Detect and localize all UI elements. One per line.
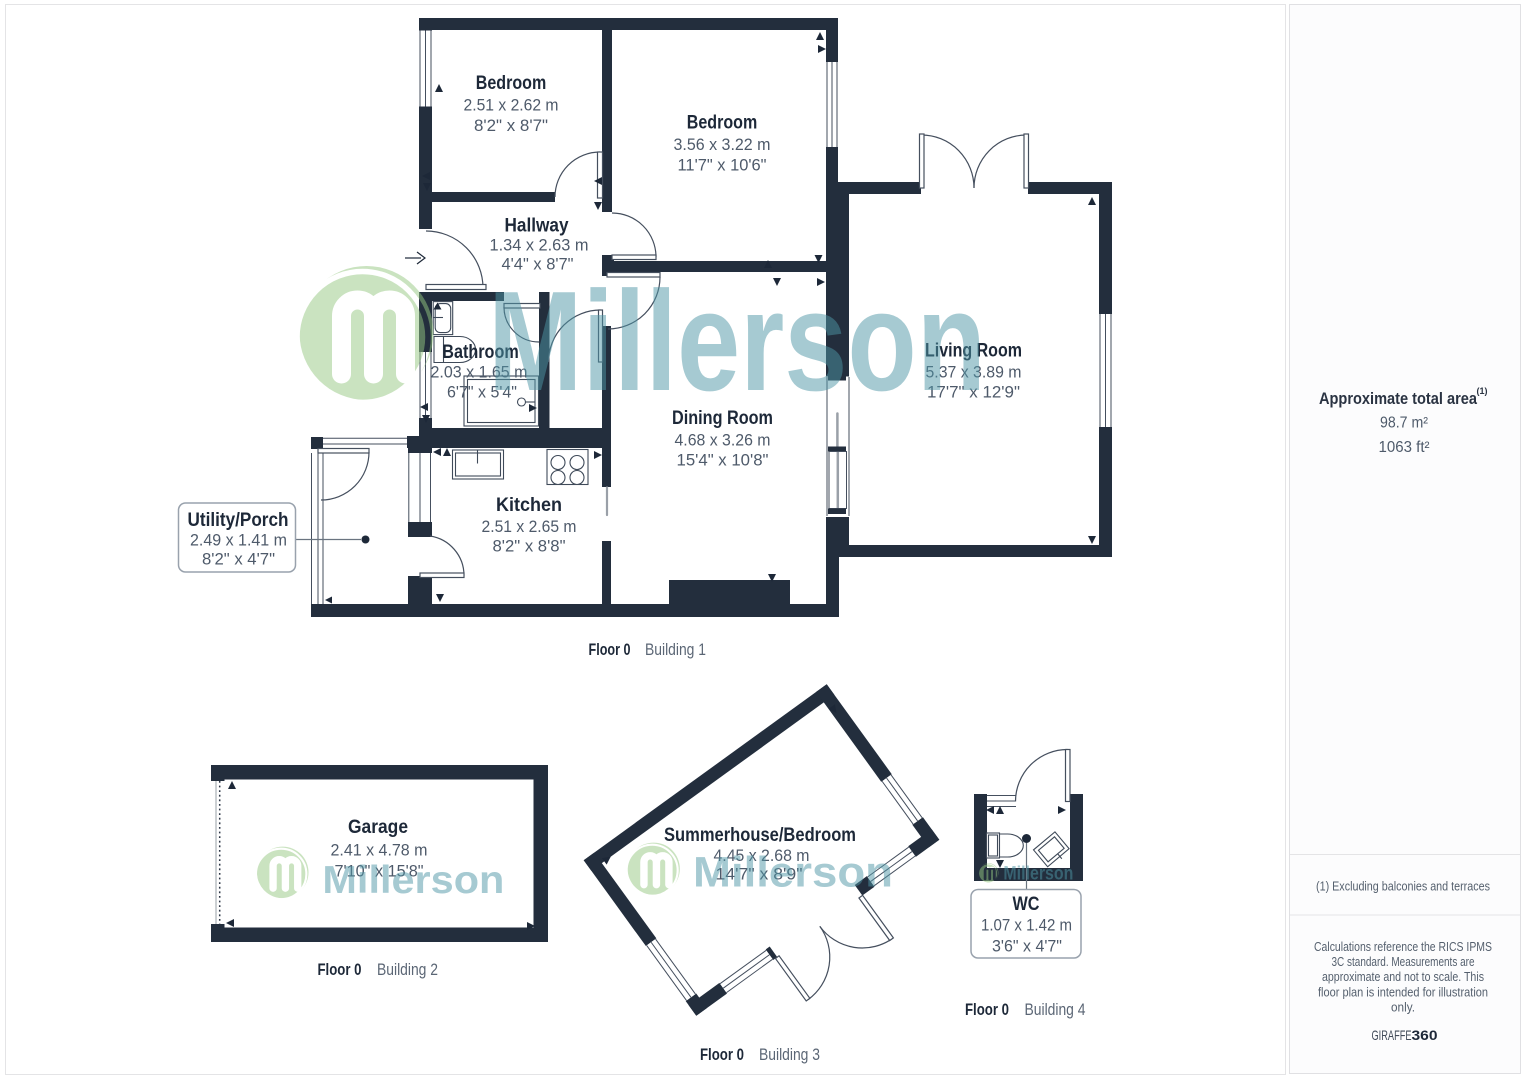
svg-text:Summerhouse/Bedroom: Summerhouse/Bedroom (664, 824, 856, 846)
svg-text:Hallway: Hallway (505, 215, 569, 237)
svg-text:Bedroom: Bedroom (687, 112, 758, 134)
svg-text:Building 2: Building 2 (377, 961, 438, 979)
svg-text:Utility/Porch: Utility/Porch (188, 509, 289, 531)
svg-text:3'6" x 4'7": 3'6" x 4'7" (992, 938, 1062, 956)
svg-text:8'2" x 8'8": 8'2" x 8'8" (493, 538, 566, 556)
svg-text:1.07 x 1.42 m: 1.07 x 1.42 m (981, 917, 1072, 935)
svg-text:1.34 x 2.63 m: 1.34 x 2.63 m (490, 237, 589, 255)
svg-text:1063 ft²: 1063 ft² (1379, 439, 1430, 456)
svg-text:Garage: Garage (348, 816, 408, 838)
svg-text:2.51 x 2.62 m: 2.51 x 2.62 m (464, 97, 559, 115)
svg-text:Kitchen: Kitchen (496, 494, 562, 516)
svg-text:Floor 0: Floor 0 (700, 1046, 744, 1064)
svg-text:360: 360 (1412, 1027, 1438, 1043)
svg-text:only.: only. (1391, 1001, 1415, 1015)
svg-text:11'7" x 10'6": 11'7" x 10'6" (678, 157, 767, 175)
svg-text:2.49 x 1.41 m: 2.49 x 1.41 m (190, 532, 287, 550)
svg-text:2.51 x 2.65 m: 2.51 x 2.65 m (482, 518, 577, 536)
svg-text:GIRAFFE: GIRAFFE (1372, 1027, 1412, 1043)
svg-text:98.7 m²: 98.7 m² (1380, 415, 1428, 432)
svg-text:Building 1: Building 1 (645, 641, 706, 659)
svg-text:Millerson: Millerson (322, 859, 504, 902)
svg-text:Bedroom: Bedroom (476, 72, 547, 94)
svg-text:4.68 x 3.26 m: 4.68 x 3.26 m (675, 432, 771, 450)
svg-text:WC: WC (1013, 893, 1040, 915)
svg-text:Floor 0: Floor 0 (589, 641, 631, 659)
svg-text:(1) Excluding balconies and te: (1) Excluding balconies and terraces (1316, 880, 1490, 894)
svg-text:8'2" x 8'7": 8'2" x 8'7" (474, 117, 548, 135)
svg-text:3C standard. Measurements are: 3C standard. Measurements are (1332, 955, 1475, 969)
svg-text:8'2" x 4'7": 8'2" x 4'7" (202, 551, 275, 569)
svg-text:15'4" x 10'8": 15'4" x 10'8" (677, 452, 769, 470)
svg-text:Building 4: Building 4 (1025, 1001, 1086, 1019)
svg-text:Millerson: Millerson (488, 262, 986, 421)
svg-text:Approximate total area: Approximate total area (1319, 389, 1477, 408)
svg-text:Millerson: Millerson (693, 850, 893, 897)
svg-text:2.41 x 4.78 m: 2.41 x 4.78 m (331, 842, 428, 860)
svg-text:Floor 0: Floor 0 (965, 1001, 1009, 1019)
svg-text:Floor 0: Floor 0 (318, 961, 362, 979)
svg-text:3.56 x 3.22 m: 3.56 x 3.22 m (674, 136, 771, 154)
svg-text:approximate and not to scale.: approximate and not to scale. This (1322, 970, 1484, 984)
svg-text:(1): (1) (1477, 386, 1488, 396)
svg-text:floor plan is intended for ill: floor plan is intended for illustration (1318, 985, 1488, 999)
svg-text:Calculations reference the RIC: Calculations reference the RICS IPMS (1314, 940, 1492, 954)
svg-text:Millerson: Millerson (1003, 864, 1073, 885)
svg-text:Building 3: Building 3 (759, 1046, 820, 1064)
